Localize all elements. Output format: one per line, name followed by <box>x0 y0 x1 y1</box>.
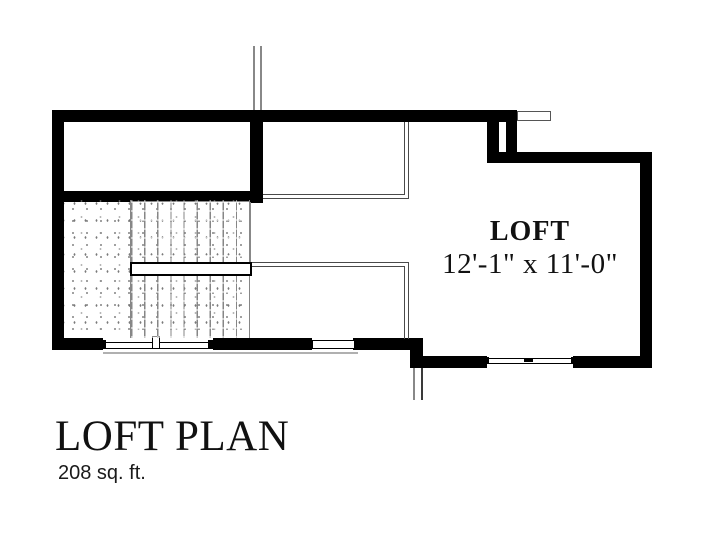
wall-bottom-seg1 <box>52 338 103 350</box>
window-bottom-left-cap-b <box>208 340 213 349</box>
upper-level-line-right <box>260 46 262 111</box>
window-sill-line <box>103 352 358 354</box>
wall-left <box>52 110 64 350</box>
wall-bottom-seg2 <box>213 338 312 350</box>
window-bottom-right-cap-a <box>485 357 489 364</box>
stair-open-separator <box>249 202 251 262</box>
loft-floor-plan: LOFT 12'-1" x 11'-0" LOFT PLAN 208 sq. f… <box>0 0 716 553</box>
lower-level-line-left <box>413 367 415 400</box>
plan-area-label: 208 sq. ft. <box>58 462 146 485</box>
loft-railing-inner <box>248 266 405 339</box>
open-below-edge-inner <box>263 122 405 195</box>
window-bottom-left-cap-a <box>101 340 106 349</box>
window-bottom-right-cap-b <box>571 357 575 364</box>
wall-bottom-seg4 <box>423 356 487 368</box>
wall-bottom-seg5 <box>573 356 652 368</box>
plan-title: LOFT PLAN <box>55 412 289 461</box>
wall-top <box>52 110 517 122</box>
room-dimensions: 12'-1" x 11'-0" <box>405 248 655 281</box>
wall-loft-top <box>487 152 652 163</box>
window-bottom-right-latch <box>524 358 533 362</box>
upper-level-line-left <box>253 46 255 111</box>
window-top-notch <box>517 111 551 121</box>
lower-level-line-right <box>421 367 423 400</box>
room-label: LOFT <box>420 216 640 248</box>
wall-notch-right <box>506 110 517 158</box>
window-bottom-middle <box>312 340 355 349</box>
stair-handrail <box>130 262 252 276</box>
wall-bottom-seg3 <box>353 338 410 350</box>
wall-stair-right <box>250 110 263 203</box>
wall-bottom-jog <box>410 338 423 368</box>
